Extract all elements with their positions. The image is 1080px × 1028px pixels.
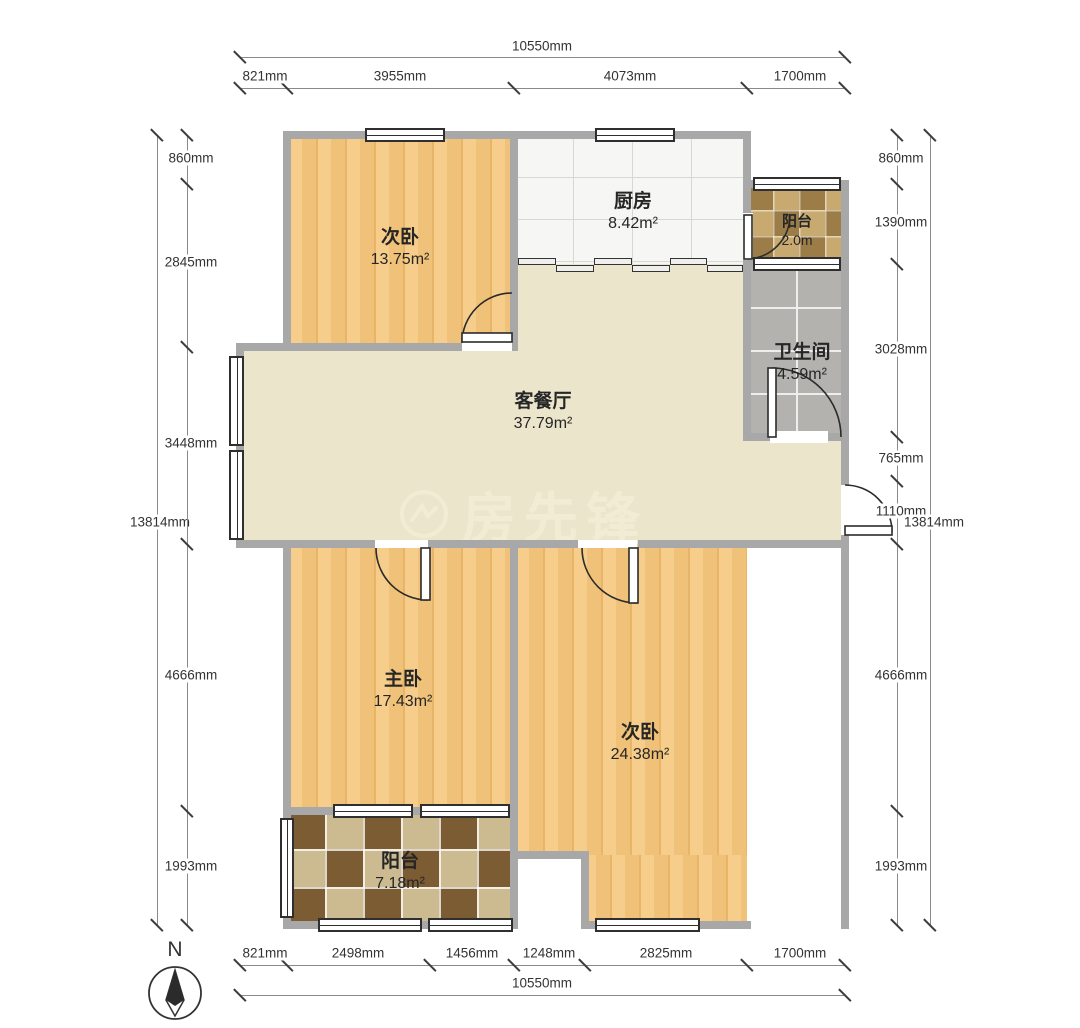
dim-label: 4666mm	[163, 668, 220, 683]
window	[229, 450, 244, 540]
dim-line-left-total	[157, 135, 158, 925]
room-label-bedroom-bottom: 次卧 24.38m²	[611, 721, 670, 765]
dim-label: 860mm	[876, 151, 925, 166]
room-area: 17.43m²	[374, 692, 433, 712]
wall	[236, 540, 378, 548]
dim-label: 4666mm	[873, 668, 930, 683]
wall	[428, 540, 580, 548]
dim-label: 1700mm	[772, 946, 829, 961]
dim-label: 2498mm	[330, 946, 387, 961]
sliding-door-segment	[518, 258, 556, 265]
wall	[743, 131, 751, 219]
dim-label: 1993mm	[873, 859, 930, 874]
dim-label-top-total: 10550mm	[510, 39, 574, 54]
dim-label: 2825mm	[638, 946, 695, 961]
door-bedroom-bottom	[575, 540, 655, 620]
dim-label: 2845mm	[163, 255, 220, 270]
dim-label: 3955mm	[372, 69, 429, 84]
floor-living-entry	[747, 437, 845, 544]
dim-line-bottom-total	[240, 995, 845, 996]
wall	[510, 851, 589, 859]
room-label-living-dining: 客餐厅 37.79m²	[514, 390, 573, 434]
floor-plan: 房先锋	[0, 0, 1080, 1028]
sliding-door-segment	[670, 258, 707, 265]
wall	[581, 851, 589, 929]
watermark-logo-icon	[398, 488, 450, 540]
room-label-balcony-bottom: 阳台 7.18m²	[375, 850, 425, 894]
window	[595, 918, 700, 932]
compass-north-label: N	[167, 938, 182, 962]
room-name: 卫生间	[773, 341, 830, 365]
wall	[638, 540, 849, 548]
window	[229, 356, 244, 446]
dim-label-bottom-total: 10550mm	[510, 976, 574, 991]
dim-label: 1700mm	[772, 69, 829, 84]
room-label-master-bedroom: 主卧 17.43m²	[374, 668, 433, 712]
dim-label: 1390mm	[873, 215, 930, 230]
wall	[283, 343, 463, 351]
dim-label: 3448mm	[163, 436, 220, 451]
dim-label: 1993mm	[163, 859, 220, 874]
room-area: 8.42m²	[608, 214, 658, 234]
sliding-door-segment	[632, 265, 670, 272]
dim-label: 860mm	[166, 151, 215, 166]
plan-notch	[514, 855, 581, 929]
dim-line-bottom-segments	[240, 965, 845, 966]
room-area: 24.38m²	[611, 745, 670, 765]
sliding-door-segment	[594, 258, 632, 265]
north-arrow-icon	[145, 962, 205, 1024]
wall	[510, 540, 518, 929]
room-area: 4.59m²	[773, 365, 830, 385]
dim-label: 1248mm	[521, 946, 578, 961]
room-name: 主卧	[374, 668, 433, 692]
wall	[743, 258, 751, 441]
room-name: 次卧	[371, 226, 430, 250]
window	[595, 128, 675, 142]
room-label-balcony-top: 阳台 2.0m	[781, 213, 812, 249]
floor-living-upper	[514, 264, 747, 352]
sliding-door-segment	[556, 265, 594, 272]
door-bedroom-top	[450, 285, 530, 355]
window	[753, 177, 841, 191]
sliding-door-segment	[707, 265, 743, 272]
room-area: 37.79m²	[514, 414, 573, 434]
room-name: 阳台	[375, 850, 425, 874]
dim-label: 821mm	[240, 69, 289, 84]
window	[280, 818, 294, 918]
window	[420, 804, 510, 818]
window	[333, 804, 413, 818]
wall	[283, 131, 291, 351]
room-area: 2.0m	[781, 232, 812, 250]
wall	[236, 343, 296, 351]
room-name: 阳台	[781, 213, 812, 232]
window	[428, 918, 513, 932]
dim-label-right-total: 13814mm	[902, 515, 966, 530]
dim-line-right-segments	[897, 135, 898, 925]
room-name: 次卧	[611, 721, 670, 745]
dim-line-right-total	[930, 135, 931, 925]
dim-label: 3028mm	[873, 342, 930, 357]
room-name: 厨房	[608, 190, 658, 214]
window	[365, 128, 445, 142]
wall	[841, 533, 849, 929]
floor-bedroom-bottom-lower	[581, 855, 747, 925]
room-area: 7.18m²	[375, 874, 425, 894]
dim-label: 821mm	[240, 946, 289, 961]
dim-line-top-segments	[240, 88, 845, 89]
room-area: 13.75m²	[371, 250, 430, 270]
door-master-bedroom	[370, 540, 445, 615]
dim-label: 4073mm	[602, 69, 659, 84]
room-label-bedroom-top: 次卧 13.75m²	[371, 226, 430, 270]
window	[318, 918, 422, 932]
room-name: 客餐厅	[514, 390, 573, 414]
dim-line-top-total	[240, 57, 845, 58]
dim-label-left-total: 13814mm	[128, 515, 192, 530]
room-label-kitchen: 厨房 8.42m²	[608, 190, 658, 234]
room-label-bathroom: 卫生间 4.59m²	[773, 341, 830, 385]
dim-label: 1456mm	[444, 946, 501, 961]
dim-label: 765mm	[876, 451, 925, 466]
dim-line-left-segments	[187, 135, 188, 925]
